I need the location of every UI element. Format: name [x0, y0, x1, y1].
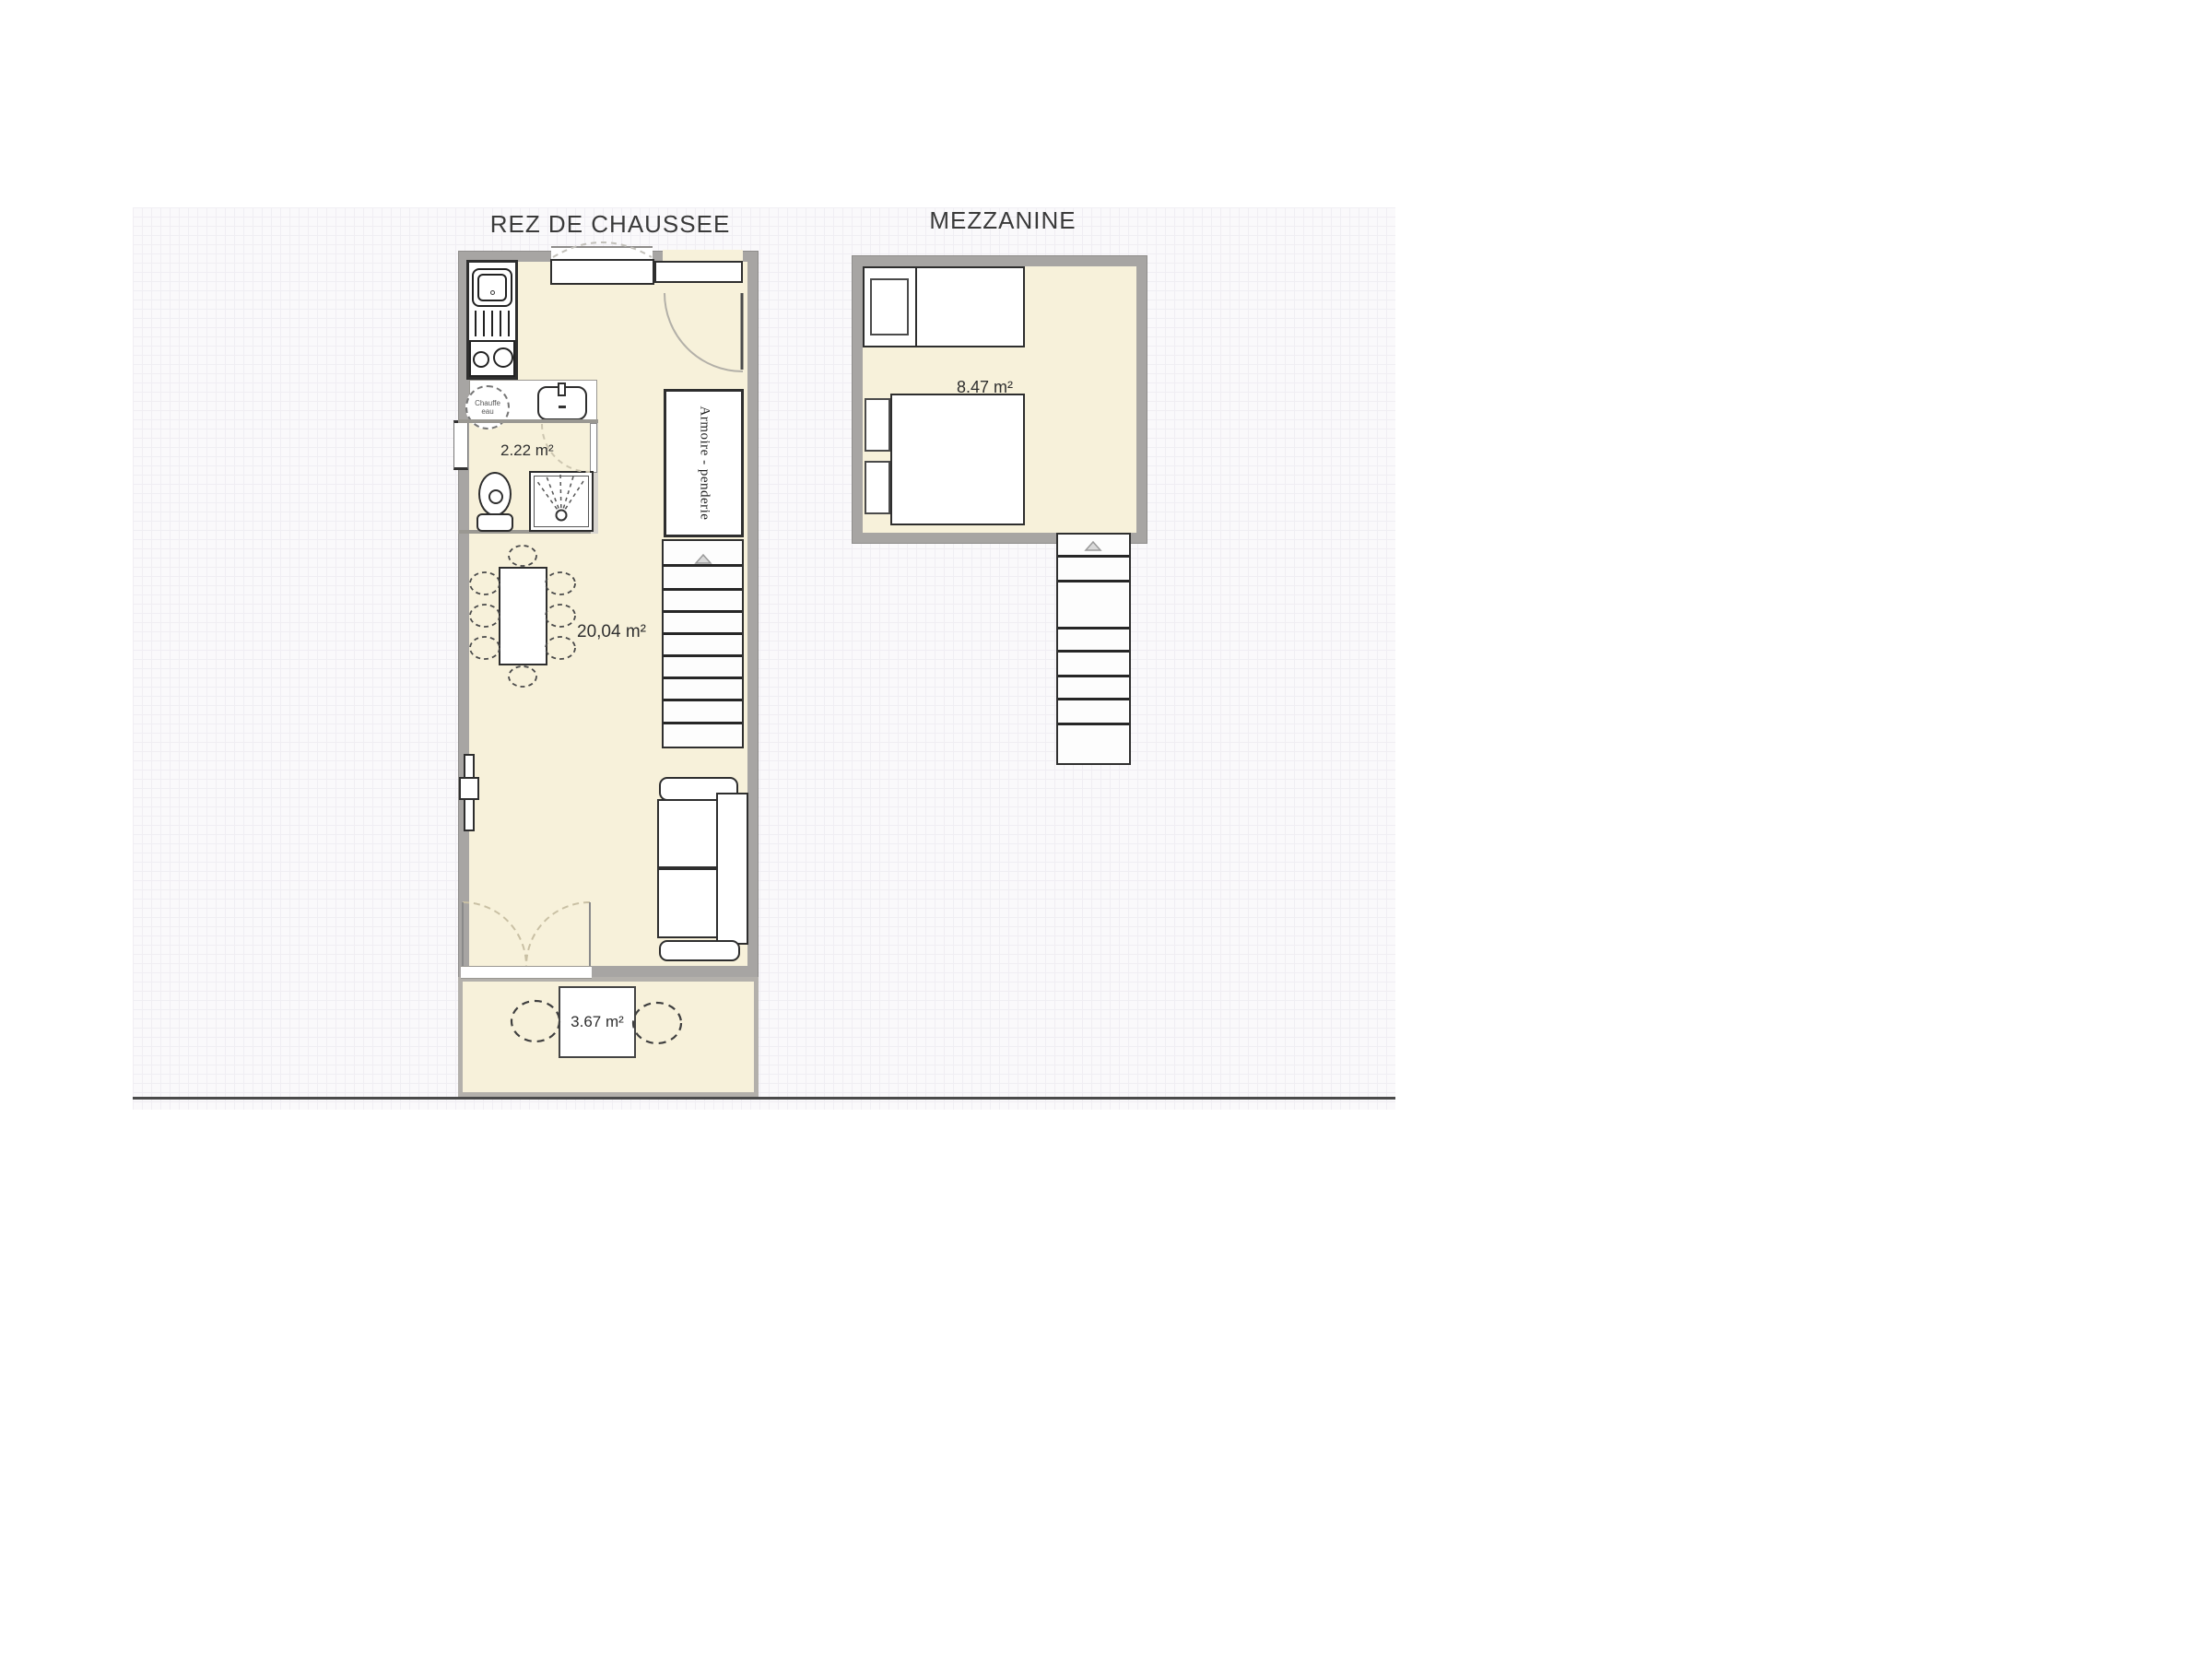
- wardrobe[interactable]: Armoire - penderie: [664, 389, 744, 537]
- bathroom-area-label: 2.22 m²: [500, 441, 554, 460]
- single-bed-pillow: [870, 278, 909, 335]
- sofa-seat-1[interactable]: [657, 799, 718, 868]
- stair-tread: [1058, 580, 1129, 582]
- single-bed-divider: [915, 268, 917, 346]
- washbasin-drain-icon: [559, 406, 566, 408]
- stair-tread: [1058, 650, 1129, 653]
- shower-inner-icon: [534, 476, 589, 527]
- cooktop-burner-left-icon: [473, 351, 489, 368]
- stair-tread: [1058, 627, 1129, 629]
- washbasin-tap-icon: [558, 382, 566, 396]
- terrace-table[interactable]: 3.67 m²: [559, 986, 636, 1058]
- sofa-seat-2[interactable]: [657, 868, 718, 938]
- stair-tread: [1058, 555, 1129, 558]
- top-cabinet-right[interactable]: [654, 261, 743, 283]
- stair-tread: [664, 722, 742, 724]
- sink-drain-icon: [490, 290, 495, 295]
- top-cabinet-left[interactable]: [550, 259, 654, 285]
- grid-background: [133, 207, 1395, 1110]
- terrace-area-label: 3.67 m²: [560, 988, 634, 1056]
- wardrobe-label: Armoire - penderie: [666, 392, 741, 535]
- stair-tread: [664, 588, 742, 591]
- stair-tread: [664, 699, 742, 701]
- double-bed[interactable]: [890, 394, 1025, 525]
- dining-table[interactable]: [499, 567, 547, 665]
- french-door-opening[interactable]: [461, 966, 592, 979]
- living-area-label: 20,04 m²: [577, 622, 646, 642]
- bathroom-wall-top: [458, 419, 598, 423]
- stair-tread: [664, 564, 742, 567]
- sofa-armrest-bottom[interactable]: [659, 940, 740, 961]
- base-line: [133, 1097, 1395, 1100]
- gf-staircase[interactable]: [662, 539, 744, 748]
- radiator-valve-icon: [459, 777, 479, 800]
- stair-tread: [664, 632, 742, 635]
- window-left-bathroom[interactable]: [453, 420, 468, 470]
- ground-floor-title: REZ DE CHAUSSEE: [490, 210, 731, 239]
- kitchen-unit[interactable]: [466, 260, 518, 380]
- stair-tread: [1058, 698, 1129, 700]
- sink-basin-icon: [477, 274, 507, 301]
- toilet-drain-icon: [488, 489, 503, 504]
- bathroom-door-leaf[interactable]: [590, 423, 597, 473]
- floor-plan-canvas: REZ DE CHAUSSEE MEZZANINE Chauffe eau: [0, 0, 2212, 1659]
- cooktop-burner-right-icon: [493, 347, 513, 368]
- stair-tread: [664, 677, 742, 679]
- toilet-tank-icon: [477, 513, 513, 532]
- stair-tread: [1058, 675, 1129, 677]
- mezzanine-title: MEZZANINE: [929, 206, 1076, 235]
- stair-tread: [1058, 723, 1129, 725]
- double-bed-pillow-top: [865, 398, 890, 452]
- drainer-icon: [475, 311, 510, 336]
- sofa-backrest[interactable]: [716, 793, 748, 945]
- double-bed-pillow-bottom: [865, 461, 890, 514]
- stair-tread: [664, 610, 742, 613]
- mz-staircase[interactable]: [1056, 533, 1131, 765]
- stair-tread: [664, 654, 742, 657]
- single-bed[interactable]: [863, 266, 1025, 347]
